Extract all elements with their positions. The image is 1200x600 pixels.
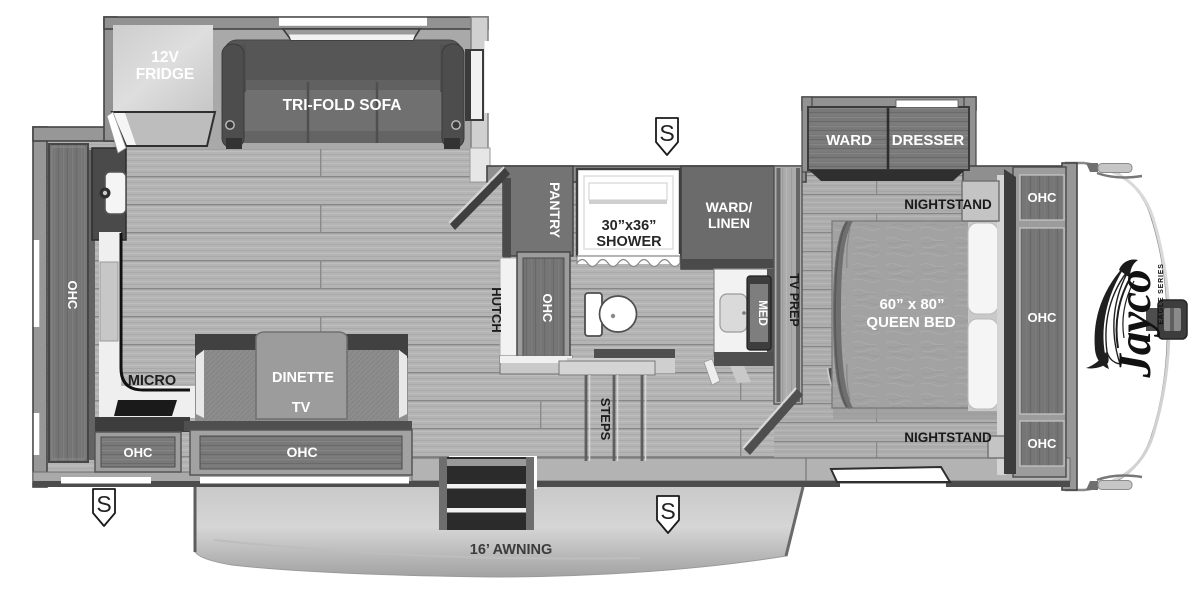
svg-text:DRESSER: DRESSER <box>892 132 965 149</box>
svg-text:TV PREP: TV PREP <box>787 273 801 327</box>
svg-text:LINEN: LINEN <box>708 215 750 231</box>
svg-text:HUTCH: HUTCH <box>489 287 504 333</box>
svg-text:OHC: OHC <box>65 281 80 311</box>
svg-text:WARD/: WARD/ <box>706 199 753 215</box>
svg-text:16’ AWNING: 16’ AWNING <box>470 542 552 558</box>
svg-text:OHC: OHC <box>1028 436 1058 451</box>
svg-text:NIGHTSTAND: NIGHTSTAND <box>904 430 992 445</box>
svg-text:QUEEN BED: QUEEN BED <box>866 314 955 331</box>
svg-text:Jayco: Jayco <box>1109 270 1161 378</box>
svg-text:DINETTE: DINETTE <box>272 370 334 386</box>
svg-text:30”x36”: 30”x36” <box>602 218 657 234</box>
svg-text:OHC: OHC <box>1028 190 1058 205</box>
svg-text:FRIDGE: FRIDGE <box>136 66 195 83</box>
svg-text:S: S <box>96 491 111 517</box>
svg-text:S: S <box>660 498 675 524</box>
svg-text:PANTRY: PANTRY <box>547 182 563 239</box>
svg-text:OHC: OHC <box>124 445 154 460</box>
svg-text:12V: 12V <box>151 49 179 66</box>
svg-text:S: S <box>659 120 674 146</box>
svg-text:TRI-FOLD SOFA: TRI-FOLD SOFA <box>283 97 402 114</box>
svg-text:MICRO: MICRO <box>128 373 176 389</box>
svg-text:OHC: OHC <box>286 444 317 460</box>
svg-text:NIGHTSTAND: NIGHTSTAND <box>904 197 992 212</box>
svg-text:STEPS: STEPS <box>598 398 613 441</box>
svg-text:WARD: WARD <box>826 132 872 149</box>
svg-text:60” x 80”: 60” x 80” <box>879 296 944 313</box>
svg-text:TV: TV <box>292 400 311 416</box>
svg-text:EAGLE SERIES: EAGLE SERIES <box>1158 263 1165 324</box>
svg-text:SHOWER: SHOWER <box>596 234 662 250</box>
svg-text:OHC: OHC <box>1028 310 1058 325</box>
svg-text:MED: MED <box>756 300 768 326</box>
svg-text:OHC: OHC <box>540 294 555 324</box>
